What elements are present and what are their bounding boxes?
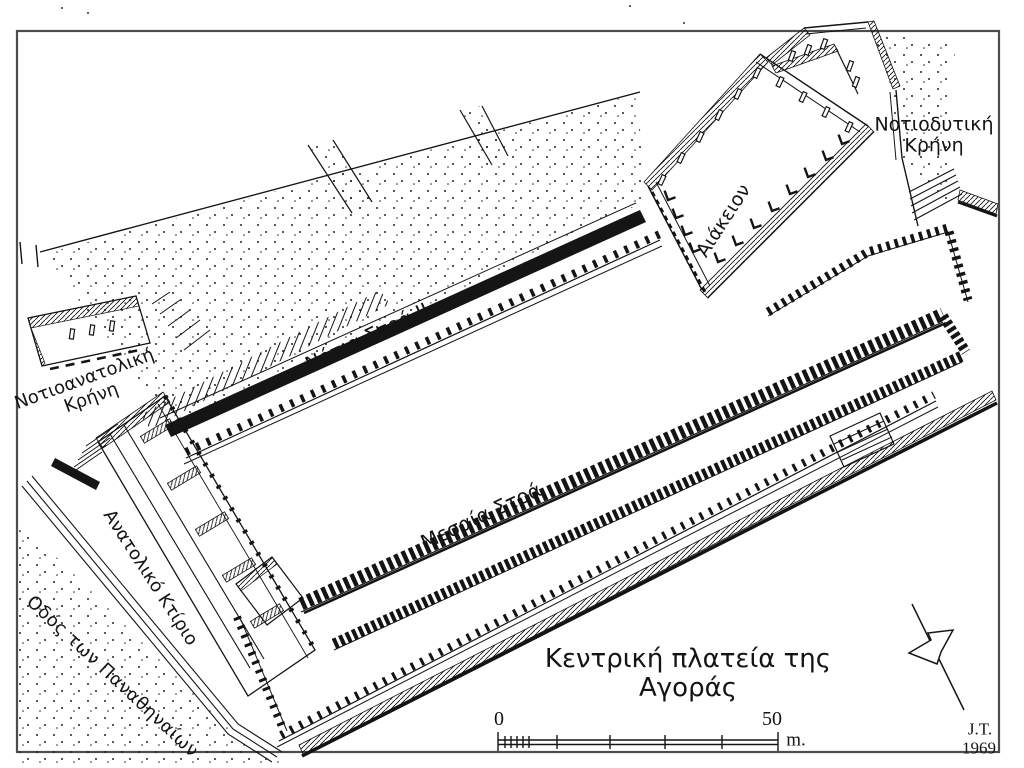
site-plan-page: Νοτιοδυτική Κρήνη Αιάκειον Νότια Στοά II… <box>0 0 1024 768</box>
scale-end-value: 50 <box>762 708 782 730</box>
signature-initials: J.T. <box>968 719 992 738</box>
signature-year: 1969 <box>962 738 996 757</box>
scale-start-value: 0 <box>494 708 504 730</box>
label-southwest-fountain: Νοτιοδυτική Κρήνη <box>874 115 993 158</box>
scale-unit: m. <box>786 729 806 750</box>
label-central-square: Κεντρική πλατεία της Αγοράς <box>520 645 856 703</box>
